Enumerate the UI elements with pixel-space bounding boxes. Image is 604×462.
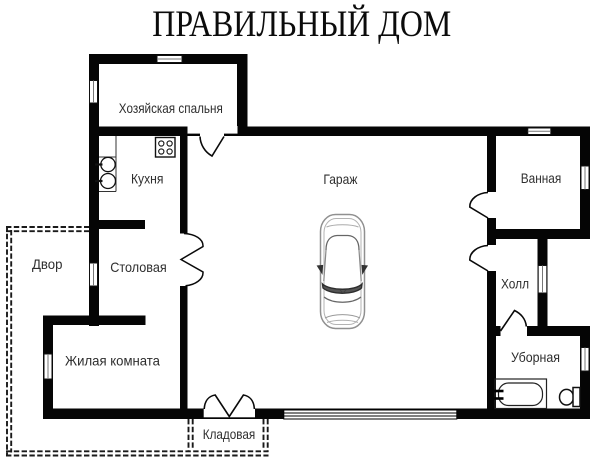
svg-text:Двор: Двор	[32, 256, 63, 272]
svg-text:Холл: Холл	[501, 276, 529, 292]
svg-text:Столовая: Столовая	[110, 259, 167, 275]
svg-text:Ванная: Ванная	[521, 170, 562, 186]
svg-text:Гараж: Гараж	[323, 171, 358, 187]
svg-text:Кладовая: Кладовая	[203, 426, 256, 442]
svg-text:Хозяйская спальня: Хозяйская спальня	[119, 100, 223, 116]
svg-text:Жилая комната: Жилая комната	[65, 353, 160, 369]
svg-text:Уборная: Уборная	[511, 349, 560, 365]
svg-text:ПРАВИЛЬНЫЙ ДОМ: ПРАВИЛЬНЫЙ ДОМ	[152, 3, 451, 45]
svg-text:Кухня: Кухня	[131, 171, 164, 187]
